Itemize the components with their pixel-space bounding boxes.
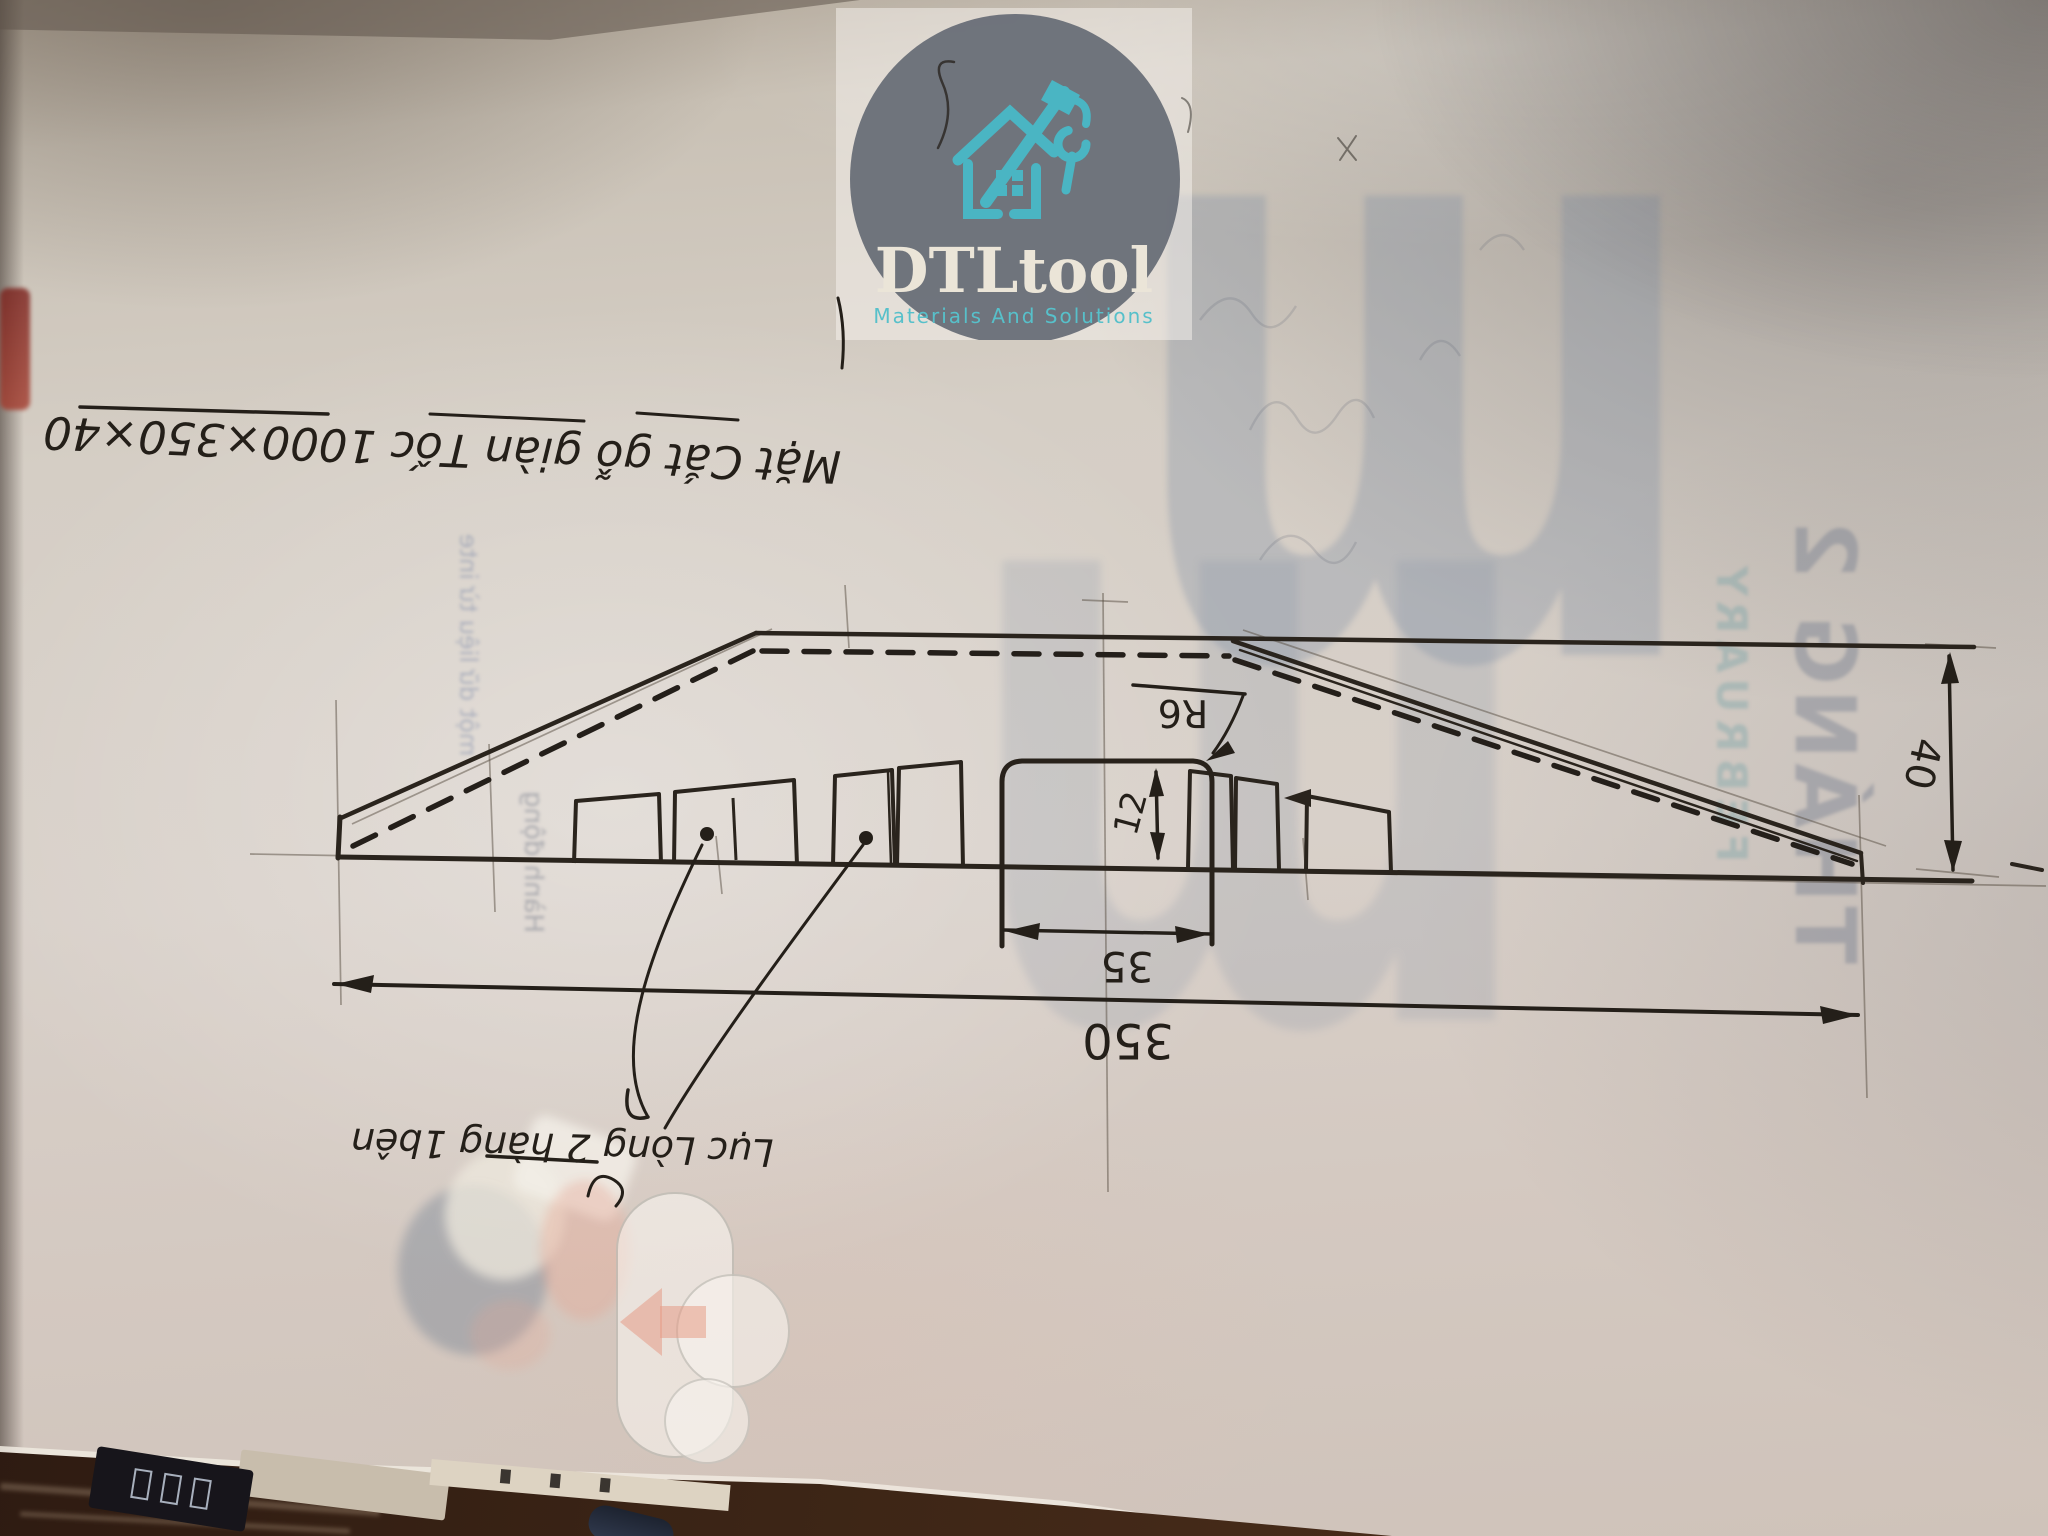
ghost-handwriting [1200,235,1524,563]
right-end [1861,853,1863,883]
top-line [756,633,1974,647]
dim-40-line [1949,656,1953,870]
stray-pen-mark [938,61,954,148]
left-edge [338,817,340,858]
sketch-note: Lục Lòng 2 hàng 1bên [350,1119,774,1174]
hand-drawn-cross-section: Mặt Cắt gỗ giàn Tốc 1000×350×40 Lục Lòng… [0,0,2048,1536]
stray-dash [2012,864,2042,870]
dim-12-label: 12 [1106,787,1156,839]
stray-pen-mark [1182,98,1191,132]
title-underline [637,413,738,420]
dim-35-label: 35 [1100,942,1153,991]
tooth-arrow-mark [1284,789,1311,807]
photo-of-sketch: m m THÁNG 2 FEBRUARY một dữ liệu từ inte… [0,0,2048,1536]
dashed-profile [353,649,1852,864]
note-hook-mark [588,1176,623,1206]
stray-pen-mark [1338,136,1356,160]
right-slope [1233,641,1861,853]
right-slope-double [1240,650,1857,861]
dim-350-line [334,984,1858,1015]
sketch-labels: Mặt Cắt gỗ giàn Tốc 1000×350×40 Lục Lòng… [42,406,1950,1175]
pencil-guides [250,585,2046,1192]
stray-pen-mark [838,298,843,368]
baseline [338,857,1972,881]
dim-350-label: 350 [1082,1012,1174,1068]
leader-dot [859,831,873,845]
dim-40-label: 40 [1894,734,1950,794]
groove-outline [1002,761,1212,946]
dimension-lines [80,61,1953,1206]
title-underline [430,414,584,421]
leader-dot [700,827,714,841]
r6-label: R6 [1158,691,1209,735]
leader-lines [627,845,863,1128]
